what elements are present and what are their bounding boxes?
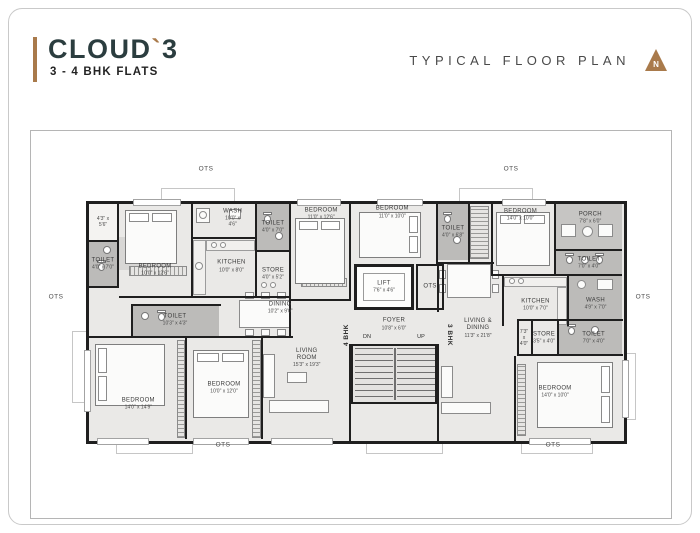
room-name: TOILET bbox=[163, 313, 188, 320]
toilet-icon bbox=[97, 260, 106, 272]
wall-segment bbox=[193, 237, 257, 239]
room-passage: 7'3" x 4'0" bbox=[517, 319, 531, 356]
toilet-icon bbox=[595, 253, 604, 265]
room-label: STORE3'5" x 4'0" bbox=[533, 331, 555, 344]
basin-icon bbox=[103, 246, 112, 258]
room-dimensions: 11'3" x 21'8" bbox=[459, 332, 498, 338]
lift-shaft: LIFT7'6" x 4'6" bbox=[354, 264, 414, 310]
wall-segment bbox=[437, 344, 439, 441]
stair-flight bbox=[397, 348, 435, 400]
room-dimensions: 7'3" x 4'0" bbox=[520, 329, 528, 347]
furniture-icon bbox=[239, 300, 291, 328]
furniture-icon bbox=[229, 209, 241, 219]
bed-icon bbox=[193, 350, 249, 418]
pillow-icon bbox=[601, 366, 610, 393]
wall-segment bbox=[185, 338, 187, 439]
window-marker bbox=[377, 199, 423, 206]
stairs-down-label: DN bbox=[357, 334, 377, 340]
room-dimensions: 4'9" x 7'0" bbox=[585, 304, 607, 310]
logo-tick: ` bbox=[152, 34, 163, 64]
furniture-icon bbox=[598, 224, 613, 237]
furniture-icon bbox=[269, 400, 329, 413]
pillow-icon bbox=[197, 353, 219, 362]
window-marker bbox=[97, 438, 149, 445]
wall-segment bbox=[556, 249, 622, 251]
furniture-icon bbox=[199, 211, 207, 219]
logo-subtitle: 3 - 4 BHK FLATS bbox=[50, 66, 159, 78]
pillow-icon bbox=[409, 236, 418, 253]
room-label: FOYER10'8" x 6'0" bbox=[382, 318, 407, 331]
pillow-icon bbox=[321, 221, 340, 230]
furniture-icon bbox=[597, 279, 613, 290]
wardrobe-icon bbox=[470, 206, 489, 259]
room-dimensions: 3'5" x 4'0" bbox=[533, 338, 555, 344]
wall-segment bbox=[291, 299, 351, 301]
room-name: PORCH bbox=[579, 211, 602, 218]
wall-segment bbox=[257, 250, 291, 252]
core-ots-shaft: OTS bbox=[416, 264, 444, 310]
logo-accent-bar bbox=[33, 37, 37, 82]
furniture-icon bbox=[441, 366, 453, 398]
room-dimensions: 10'0" x 8'0" bbox=[217, 267, 245, 273]
wall-segment bbox=[554, 204, 556, 274]
room-toilet-2: TOILET4'0" x 7'0" bbox=[257, 204, 289, 250]
pillow-icon bbox=[500, 215, 521, 224]
page-title: TYPICAL FLOOR PLAN bbox=[409, 53, 630, 68]
furniture-icon bbox=[492, 284, 499, 293]
wall-segment bbox=[557, 319, 559, 356]
wall-segment bbox=[468, 204, 470, 262]
furniture-icon bbox=[261, 282, 267, 288]
furniture-icon bbox=[263, 354, 275, 398]
furniture-icon bbox=[220, 242, 226, 248]
room-dimensions: 10'0" x 7'0" bbox=[521, 306, 549, 312]
furniture-icon bbox=[509, 278, 515, 284]
toilet-icon bbox=[565, 253, 574, 265]
wall-segment bbox=[89, 286, 119, 288]
wall-segment bbox=[436, 262, 494, 264]
pillow-icon bbox=[409, 216, 418, 233]
bed-icon bbox=[95, 344, 165, 406]
basin-icon bbox=[453, 236, 462, 248]
wardrobe-icon bbox=[517, 364, 526, 436]
logo: CLOUD`3 bbox=[48, 34, 179, 65]
toilet-icon bbox=[157, 310, 166, 322]
basin-icon bbox=[275, 232, 284, 244]
room-label: PORCH7'8" x 6'0" bbox=[579, 211, 602, 224]
floor-plan-panel: OTS OTS OTS OTS OTS OTS 4'3" x 5'6"TOILE… bbox=[30, 130, 672, 519]
room-dimensions: 10'8" x 6'0" bbox=[382, 325, 407, 331]
wall-segment bbox=[531, 319, 533, 356]
room-dimensions: 7'0" x 4'0" bbox=[582, 338, 605, 344]
window-marker bbox=[622, 360, 629, 418]
room-label: STORE4'0" x 5'2" bbox=[262, 267, 284, 280]
bed-icon bbox=[537, 362, 613, 428]
ots-label: OTS bbox=[49, 294, 64, 301]
window-marker bbox=[133, 199, 181, 206]
logo-number: 3 bbox=[162, 34, 179, 64]
room-label: TOILET10'3" x 4'3" bbox=[163, 313, 188, 326]
logo-text: CLOUD bbox=[48, 34, 152, 64]
furniture-icon bbox=[245, 329, 254, 336]
staircase bbox=[351, 344, 437, 404]
room-label: KITCHEN10'0" x 7'0" bbox=[521, 298, 549, 311]
wall-segment bbox=[117, 204, 119, 286]
wardrobe-icon bbox=[252, 340, 261, 438]
north-arrow-icon: N bbox=[644, 48, 668, 72]
room-name: KITCHEN bbox=[217, 260, 245, 267]
furniture-icon bbox=[277, 329, 286, 336]
room-name: FOYER bbox=[382, 318, 407, 325]
room-label: WASH4'9" x 7'0" bbox=[585, 297, 607, 310]
furniture-icon bbox=[518, 278, 524, 284]
basin-icon bbox=[591, 326, 600, 338]
wall-segment bbox=[191, 204, 193, 298]
basin-icon bbox=[141, 312, 150, 324]
stair-flight bbox=[355, 348, 393, 400]
toilet-icon bbox=[443, 212, 452, 224]
room-label: LIVING ROOM15'3" x 19'3" bbox=[286, 348, 328, 368]
pillow-icon bbox=[98, 348, 107, 373]
pillow-icon bbox=[601, 396, 610, 423]
pillow-icon bbox=[129, 213, 149, 222]
room-label: KITCHEN10'0" x 8'0" bbox=[217, 260, 245, 273]
furniture-icon bbox=[561, 224, 576, 237]
furniture-icon bbox=[447, 264, 491, 298]
room-store-2: STORE3'5" x 4'0" bbox=[531, 319, 557, 356]
unit-label-4bhk: 4 BHK bbox=[343, 312, 355, 358]
window-marker bbox=[502, 199, 546, 206]
room-name: STORE bbox=[262, 267, 284, 274]
room-name: BEDROOM bbox=[305, 207, 338, 214]
room-store-1: STORE4'0" x 5'2" bbox=[257, 252, 289, 296]
window-marker bbox=[271, 438, 333, 445]
room-dimensions: 4'0" x 5'2" bbox=[262, 275, 284, 281]
furniture-icon bbox=[195, 262, 203, 270]
wall-segment bbox=[491, 204, 493, 276]
ots-label: OTS bbox=[199, 166, 214, 173]
window-marker bbox=[297, 199, 341, 206]
stairs-up-label: UP bbox=[411, 334, 431, 340]
room-label: 7'3" x 4'0" bbox=[520, 329, 528, 347]
furniture-icon bbox=[261, 329, 270, 336]
ots-label: OTS bbox=[504, 166, 519, 173]
wall-segment bbox=[349, 344, 351, 441]
bed-icon bbox=[496, 212, 550, 266]
wall-segment bbox=[436, 204, 438, 264]
room-dimensions: 15'3" x 19'3" bbox=[286, 362, 328, 368]
pillow-icon bbox=[524, 215, 545, 224]
ots-label: OTS bbox=[423, 283, 436, 290]
wall-segment bbox=[89, 240, 119, 242]
wall-segment bbox=[131, 304, 133, 336]
wall-segment bbox=[514, 356, 516, 441]
wardrobe-icon bbox=[177, 340, 185, 438]
unit-label-3bhk: 3 BHK bbox=[441, 312, 453, 358]
wall-segment bbox=[131, 304, 221, 306]
room-label: LIVING & DINING11'3" x 21'8" bbox=[459, 318, 498, 338]
page: CLOUD`3 3 - 4 BHK FLATS TYPICAL FLOOR PL… bbox=[0, 0, 700, 533]
room-name: TOILET bbox=[442, 225, 465, 232]
wardrobe-icon bbox=[129, 266, 187, 276]
wall-segment bbox=[261, 338, 263, 439]
room-dimensions: 4'3" x 5'6" bbox=[96, 216, 110, 228]
wall-segment bbox=[119, 296, 291, 298]
basin-icon bbox=[581, 256, 590, 268]
ots-label: OTS bbox=[636, 294, 651, 301]
room-name: LIVING & DINING bbox=[459, 318, 498, 332]
wall-segment bbox=[492, 274, 622, 276]
bed-icon bbox=[125, 210, 177, 264]
pillow-icon bbox=[222, 353, 244, 362]
bed-icon bbox=[295, 218, 345, 284]
wall-segment bbox=[349, 204, 351, 299]
title-block: TYPICAL FLOOR PLAN N bbox=[409, 48, 668, 72]
furniture-icon bbox=[287, 372, 307, 383]
ots-label: OTS bbox=[216, 442, 231, 449]
furniture-icon bbox=[270, 282, 276, 288]
pillow-icon bbox=[152, 213, 172, 222]
furniture-icon bbox=[582, 226, 593, 237]
window-marker bbox=[84, 350, 91, 412]
furniture-icon bbox=[441, 402, 491, 414]
room-name: LIVING ROOM bbox=[286, 348, 328, 362]
building-plan: 4'3" x 5'6"TOILET4'0" x 7'0"BEDROOM10'0"… bbox=[86, 201, 627, 444]
furniture-icon bbox=[211, 242, 217, 248]
wall-segment bbox=[502, 276, 504, 326]
room-name: WASH bbox=[585, 297, 607, 304]
room-label: 4'3" x 5'6" bbox=[96, 216, 110, 228]
room-dimensions: 10'3" x 4'3" bbox=[163, 321, 188, 327]
wall-segment bbox=[289, 204, 291, 336]
wall-segment bbox=[517, 319, 519, 356]
ots-label: OTS bbox=[546, 442, 561, 449]
pillow-icon bbox=[299, 221, 318, 230]
toilet-icon bbox=[263, 212, 272, 224]
wall-segment bbox=[437, 262, 439, 312]
furniture-icon bbox=[577, 280, 586, 289]
room-name: KITCHEN bbox=[521, 298, 549, 305]
room-utility-nook: 4'3" x 5'6" bbox=[89, 204, 117, 240]
north-label: N bbox=[653, 60, 659, 69]
bed-icon bbox=[359, 212, 421, 258]
pillow-icon bbox=[98, 376, 107, 401]
room-name: STORE bbox=[533, 331, 555, 338]
